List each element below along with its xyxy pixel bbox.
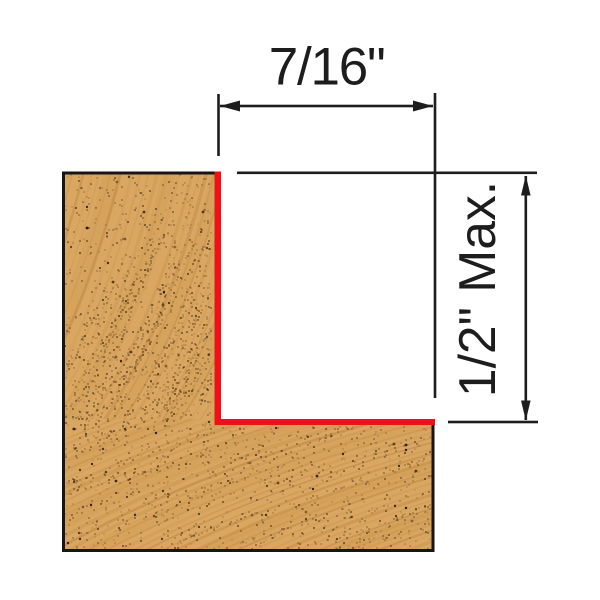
svg-text:7/16": 7/16" bbox=[269, 37, 385, 96]
svg-text:1/2" Max.: 1/2" Max. bbox=[448, 181, 506, 397]
